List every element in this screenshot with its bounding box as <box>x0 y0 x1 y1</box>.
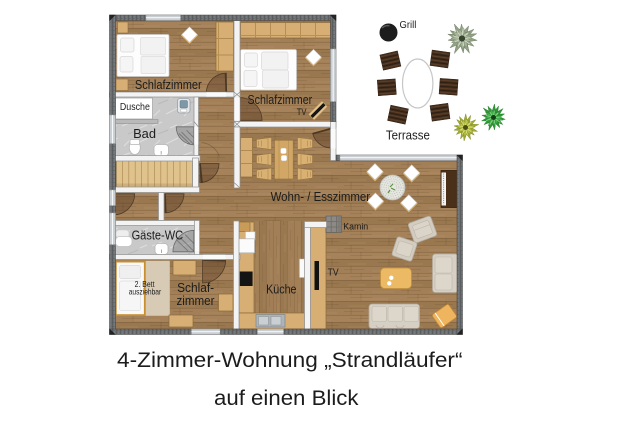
svg-text:Schlafzimmer: Schlafzimmer <box>135 77 202 92</box>
svg-text:TV: TV <box>328 268 339 279</box>
svg-text:auf einen Blick: auf einen Blick <box>214 386 359 410</box>
svg-text:Schlafzimmer: Schlafzimmer <box>248 92 313 107</box>
svg-text:Grill: Grill <box>400 19 417 31</box>
svg-text:Kamin: Kamin <box>343 222 368 232</box>
svg-text:TV: TV <box>297 107 307 118</box>
svg-text:Küche: Küche <box>266 282 296 297</box>
svg-text:ausziehbar: ausziehbar <box>129 287 162 297</box>
svg-text:Terrasse: Terrasse <box>386 127 430 142</box>
svg-text:Wohn- / Esszimmer: Wohn- / Esszimmer <box>271 189 371 204</box>
svg-text:zimmer: zimmer <box>177 293 216 308</box>
svg-text:Bad: Bad <box>133 127 156 141</box>
svg-text:Dusche: Dusche <box>120 102 150 113</box>
svg-text:Gäste-WC: Gäste-WC <box>132 227 184 242</box>
svg-text:4-Zimmer-Wohnung „Strandläufer: 4-Zimmer-Wohnung „Strandläufer“ <box>117 348 463 372</box>
